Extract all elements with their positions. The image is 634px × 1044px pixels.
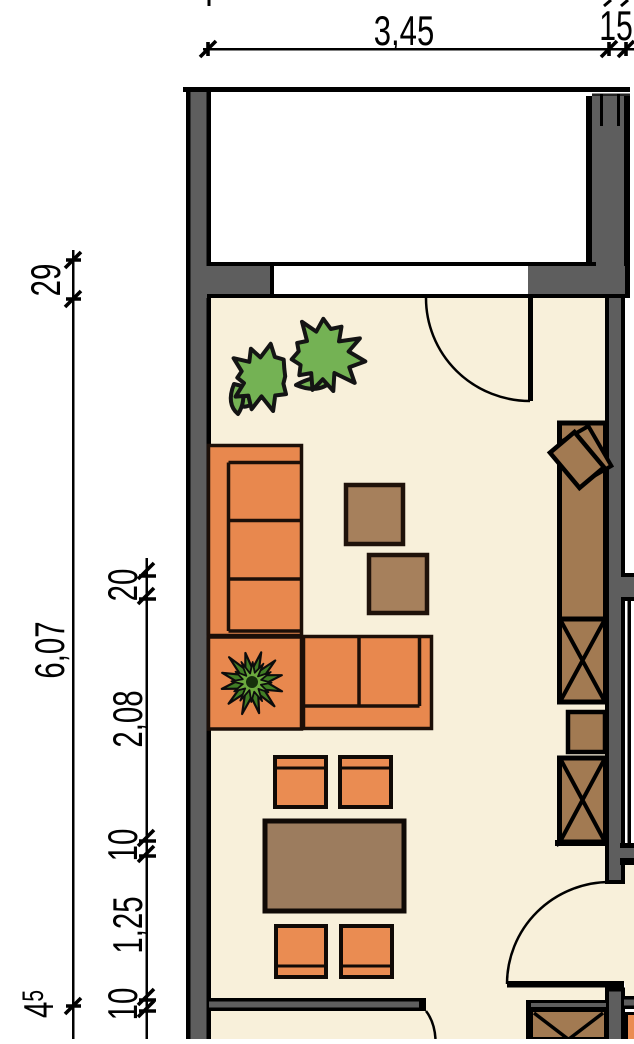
svg-text:10: 10 [99, 988, 147, 1021]
svg-text:10: 10 [99, 829, 147, 862]
svg-text:6,07: 6,07 [26, 621, 74, 678]
svg-text:1,25: 1,25 [104, 896, 152, 953]
svg-text:15: 15 [599, 2, 633, 49]
svg-text:29: 29 [22, 264, 70, 297]
svg-text:20: 20 [99, 569, 147, 602]
svg-text:2,08: 2,08 [104, 690, 152, 747]
svg-text:3,45: 3,45 [374, 7, 434, 54]
